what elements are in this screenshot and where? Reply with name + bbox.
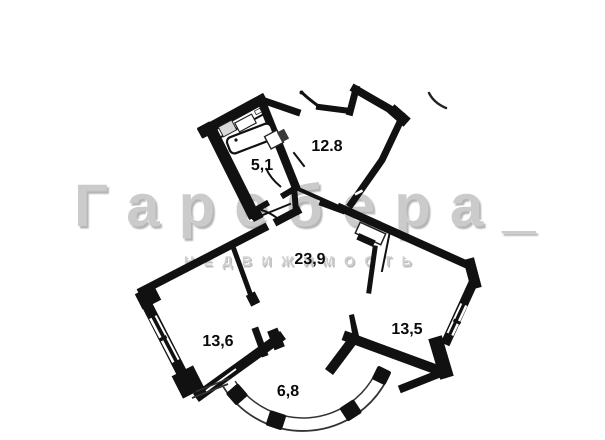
svg-text:5,1: 5,1: [251, 157, 273, 174]
svg-text:6,8: 6,8: [277, 383, 299, 400]
svg-text:12.8: 12.8: [311, 138, 342, 155]
svg-text:13,6: 13,6: [202, 333, 233, 350]
svg-text:13,5: 13,5: [391, 321, 422, 338]
svg-text:Гаребера_: Гаребера_: [74, 172, 555, 239]
svg-text:23,9: 23,9: [294, 251, 325, 268]
